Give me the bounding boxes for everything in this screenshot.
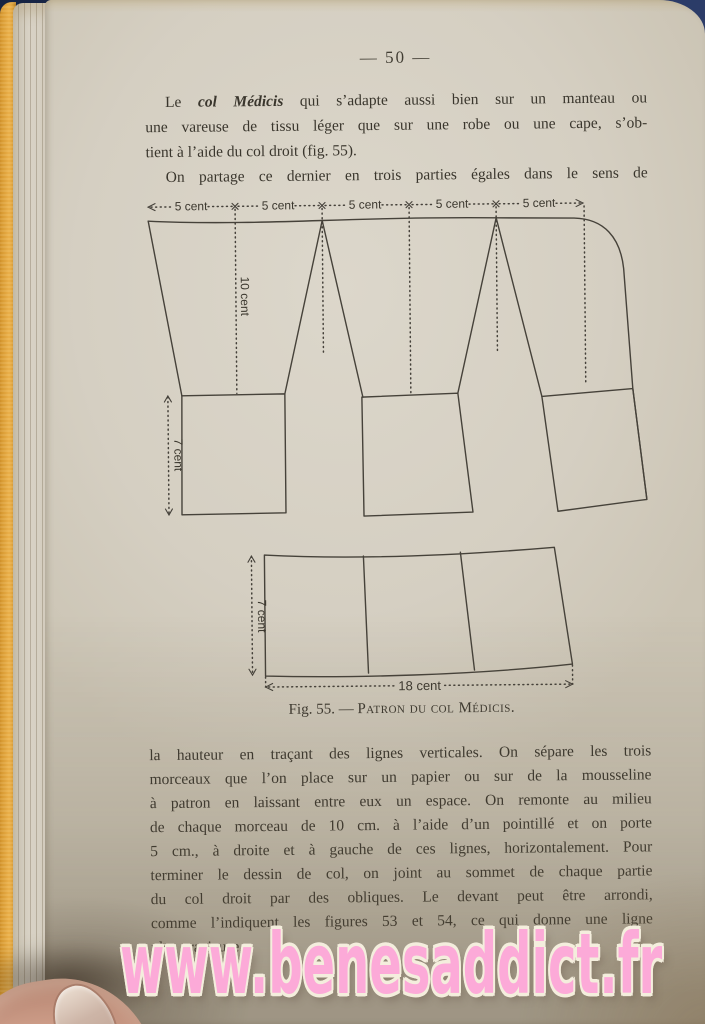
- ten-cent-label: 10 cent: [238, 276, 252, 316]
- collar-top-outline: [148, 216, 647, 504]
- five-cent-label: 5 cent: [436, 197, 469, 211]
- five-cent-label: 5 cent: [262, 198, 295, 212]
- piece3-base-rect: [542, 388, 647, 511]
- seven-cent-arrows-top: [164, 396, 172, 515]
- pattern-figure: 5 cent 5 cent 5 cent 5 cent 5 cent 10 ce…: [128, 192, 683, 707]
- pattern-figure-svg: 5 cent 5 cent 5 cent 5 cent 5 cent 10 ce…: [128, 192, 683, 707]
- text-run: qui s’adapte aussi bien sur un manteau o…: [283, 89, 647, 109]
- measure-labels: 5 cent 5 cent 5 cent 5 cent 5 cent 10 ce…: [169, 196, 561, 696]
- measure-arrows-ticks: [148, 199, 588, 691]
- paragraph-top: Le col Médicis qui s’adapte aussi bien s…: [145, 85, 648, 190]
- figure-caption: Fig. 55. — Patron du col Médicis.: [151, 698, 653, 720]
- measurement-dotted-lines: [151, 203, 589, 688]
- text-line: une vareuse de tissu léger que sur une r…: [145, 110, 647, 140]
- collar-solid-lines: [148, 216, 648, 679]
- eighteen-cent-label: 18 cent: [398, 678, 441, 693]
- piece1-base-rect: [181, 394, 286, 515]
- seven-cent-guide-bottom: [251, 556, 252, 675]
- watermark-url: www.benesaddict.fr: [120, 923, 662, 1007]
- col-droit-dividers: [363, 552, 474, 673]
- five-cent-label: 5 cent: [523, 196, 556, 210]
- seven-cent-label-bottom: 7 cent: [255, 600, 269, 633]
- book-photo-scene: — 50 — Le col Médicis qui s’adapte aussi…: [0, 0, 705, 1024]
- page-content: — 50 — Le col Médicis qui s’adapte aussi…: [41, 0, 705, 1024]
- book-page: — 50 — Le col Médicis qui s’adapte aussi…: [45, 0, 705, 1024]
- text-line: On partage ce dernier en trois parties é…: [146, 160, 648, 190]
- col-droit-outline: [264, 547, 572, 677]
- piece1-left-edge: [148, 221, 182, 396]
- five-cent-label: 5 cent: [175, 199, 208, 213]
- vertical-guides: [235, 206, 586, 396]
- dart2-legs: [456, 217, 542, 397]
- caption-fig-number: Fig. 55. —: [289, 701, 358, 718]
- emphasis-col-medicis: col Médicis: [198, 93, 284, 111]
- seven-cent-label-top: 7 cent: [171, 438, 185, 471]
- seven-cent-guide-top: [168, 397, 169, 514]
- piece2-base-rect: [362, 393, 473, 516]
- page-number: — 50 —: [145, 45, 647, 70]
- five-cent-label: 5 cent: [349, 197, 382, 211]
- text-run: Le: [165, 94, 198, 111]
- caption-title: Patron du col Médicis.: [357, 700, 515, 718]
